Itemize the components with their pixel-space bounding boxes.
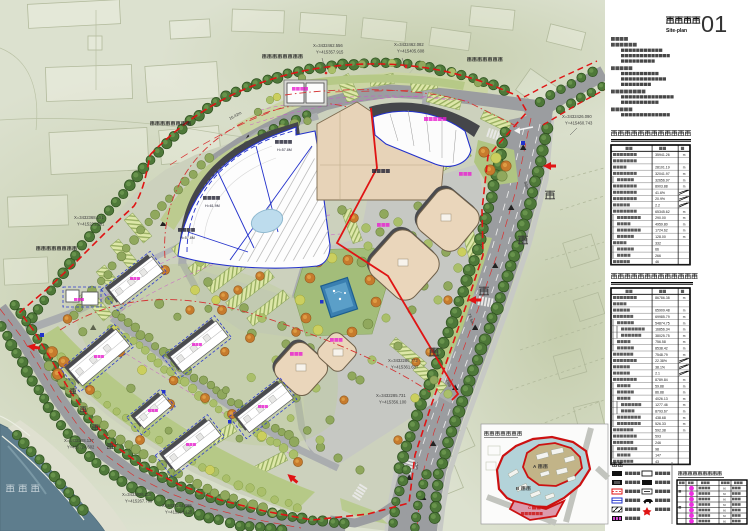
svg-text:Y=415221.261: Y=415221.261 <box>77 222 105 227</box>
svg-text:128.00: 128.00 <box>655 235 666 239</box>
svg-text:16856.34: 16856.34 <box>655 328 670 332</box>
svg-text:X=3432264.865: X=3432264.865 <box>162 503 192 508</box>
svg-text:266: 266 <box>655 254 661 258</box>
svg-text:13m: 13m <box>414 462 420 471</box>
svg-text:Site-plan: Site-plan <box>666 28 687 34</box>
svg-text:m: m <box>683 153 686 157</box>
svg-text:41.6%: 41.6% <box>655 191 665 195</box>
svg-text:8793.67: 8793.67 <box>655 410 668 414</box>
svg-text:32041.97: 32041.97 <box>655 172 670 176</box>
svg-text:m: m <box>683 229 686 233</box>
svg-text:8538.42: 8538.42 <box>655 347 668 351</box>
svg-text:m: m <box>683 378 686 382</box>
svg-text:m: m <box>683 296 686 300</box>
svg-text:m: m <box>683 340 686 344</box>
svg-text:Y=415361.617: Y=415361.617 <box>391 365 419 370</box>
svg-text:35941.26: 35941.26 <box>655 153 670 157</box>
svg-text:m: m <box>683 353 686 357</box>
svg-text:756.58: 756.58 <box>655 340 666 344</box>
svg-text:m: m <box>683 216 686 220</box>
svg-text:m: m <box>683 384 686 388</box>
svg-text:59.88: 59.88 <box>655 384 664 388</box>
svg-text:m: m <box>683 397 686 401</box>
svg-text:28101.19: 28101.19 <box>655 166 670 170</box>
svg-text:65345.62: 65345.62 <box>655 210 670 214</box>
svg-text:m: m <box>683 178 686 182</box>
svg-text:22.38%: 22.38% <box>655 359 667 363</box>
svg-text:4026.13: 4026.13 <box>655 397 668 401</box>
svg-text:20.9%: 20.9% <box>655 197 665 201</box>
svg-text:246: 246 <box>655 441 661 445</box>
svg-text:C: C <box>528 505 531 510</box>
svg-text:86.88: 86.88 <box>655 391 664 395</box>
svg-text:2.2: 2.2 <box>655 204 660 208</box>
svg-text:X=3432426.090: X=3432426.090 <box>562 114 592 119</box>
svg-text:86786.38: 86786.38 <box>655 296 670 300</box>
svg-text:65909.48: 65909.48 <box>655 309 670 313</box>
svg-text:69985.79: 69985.79 <box>655 315 670 319</box>
svg-text:m: m <box>683 235 686 239</box>
svg-text:m: m <box>683 222 686 226</box>
svg-text:X=3432462.556: X=3432462.556 <box>313 43 343 48</box>
svg-text:X=3432285.731: X=3432285.731 <box>376 393 406 398</box>
svg-text:438.68: 438.68 <box>655 416 666 420</box>
svg-text:38025.75: 38025.75 <box>655 334 670 338</box>
svg-text:46: 46 <box>655 260 659 264</box>
svg-text:290.00: 290.00 <box>655 216 666 220</box>
svg-text:H=57.8M: H=57.8M <box>180 236 195 240</box>
svg-text:X=3432462.082: X=3432462.082 <box>394 42 424 47</box>
svg-text:43: 43 <box>655 460 659 464</box>
svg-text:m: m <box>683 185 686 189</box>
svg-text:593: 593 <box>655 435 661 439</box>
svg-text:1724.62: 1724.62 <box>655 229 668 233</box>
svg-text:Y=415460.743: Y=415460.743 <box>565 121 593 126</box>
svg-text:8789.84: 8789.84 <box>655 378 668 382</box>
svg-text:H=57.8M: H=57.8M <box>277 148 292 152</box>
svg-text:X=3432926.118: X=3432926.118 <box>122 492 152 497</box>
svg-text:m: m <box>683 410 686 414</box>
svg-text:m: m <box>683 428 686 432</box>
svg-text:H=61.9M: H=61.9M <box>205 204 220 208</box>
svg-text:Y=415224.602: Y=415224.602 <box>67 445 95 450</box>
svg-text:m: m <box>683 172 686 176</box>
svg-text:32656.97: 32656.97 <box>655 178 670 182</box>
svg-text:X=3432286.772: X=3432286.772 <box>388 358 418 363</box>
svg-text:8903.88: 8903.88 <box>655 185 668 189</box>
svg-text:m: m <box>683 166 686 170</box>
svg-text:m: m <box>683 328 686 332</box>
svg-text:1277.46: 1277.46 <box>655 403 668 407</box>
svg-text:38.1%: 38.1% <box>655 365 665 369</box>
svg-text:m: m <box>683 422 686 426</box>
svg-text:m: m <box>683 403 686 407</box>
svg-text:526.33: 526.33 <box>655 422 666 426</box>
svg-text:332: 332 <box>655 241 661 245</box>
svg-text:m: m <box>683 391 686 395</box>
svg-text:Y=415266.125: Y=415266.125 <box>165 510 193 515</box>
svg-text:54874.75: 54874.75 <box>655 321 670 325</box>
svg-text:592.38: 592.38 <box>655 428 666 432</box>
svg-text:X=3432368.191: X=3432368.191 <box>74 215 104 220</box>
svg-text:m: m <box>683 334 686 338</box>
svg-text:m: m <box>683 321 686 325</box>
svg-text:01: 01 <box>701 11 727 37</box>
svg-text:98: 98 <box>655 447 659 451</box>
svg-text:7548.79: 7548.79 <box>655 353 668 357</box>
svg-text:Y=415405.608: Y=415405.608 <box>397 49 425 54</box>
svg-text:m: m <box>683 347 686 351</box>
svg-text:66: 66 <box>655 248 659 252</box>
svg-text:m: m <box>683 315 686 319</box>
svg-text:X=3432268.137: X=3432268.137 <box>64 438 94 443</box>
svg-text:Y=415356.100: Y=415356.100 <box>379 400 407 405</box>
svg-text:m: m <box>683 309 686 313</box>
svg-text:Y=415357.915: Y=415357.915 <box>316 50 344 55</box>
svg-text:2.1: 2.1 <box>655 372 660 376</box>
svg-text:Y=415267.709: Y=415267.709 <box>125 499 153 504</box>
svg-text:m: m <box>683 416 686 420</box>
svg-text:m: m <box>683 210 686 214</box>
svg-text:4959.80: 4959.80 <box>655 222 668 226</box>
svg-text:147: 147 <box>655 454 661 458</box>
